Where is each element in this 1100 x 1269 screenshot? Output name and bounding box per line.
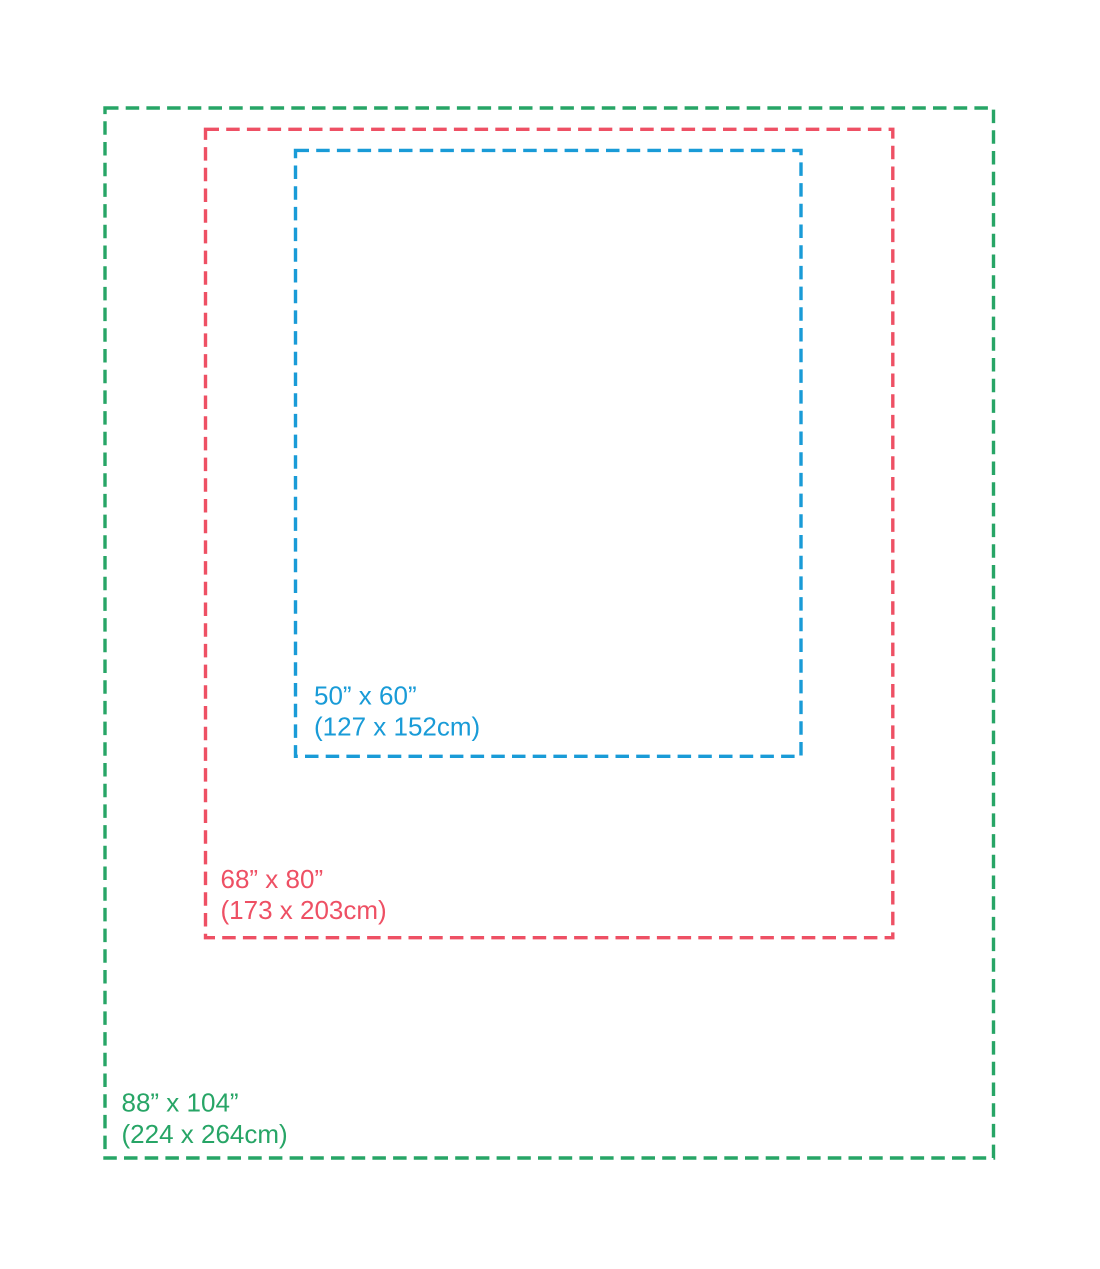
svg-text:(173 x 203cm): (173 x 203cm) — [221, 895, 387, 925]
svg-text:(127 x 152cm): (127 x 152cm) — [314, 711, 480, 741]
svg-text:68” x 80”: 68” x 80” — [221, 864, 324, 894]
svg-text:(224 x 264cm): (224 x 264cm) — [122, 1119, 288, 1149]
svg-text:88” x 104”: 88” x 104” — [122, 1087, 239, 1117]
svg-text:50” x 60”: 50” x 60” — [314, 681, 417, 711]
